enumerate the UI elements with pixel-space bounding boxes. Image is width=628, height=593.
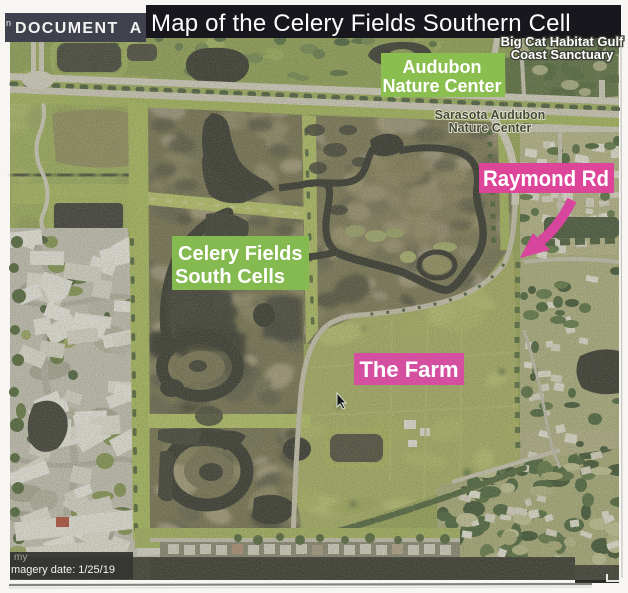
svg-text:South Cells: South Cells bbox=[175, 266, 285, 288]
svg-text:magery date: 1/25/19: magery date: 1/25/19 bbox=[11, 564, 115, 576]
svg-text:Nature Center: Nature Center bbox=[382, 76, 501, 96]
svg-text:my: my bbox=[14, 552, 27, 563]
svg-text:Audubon: Audubon bbox=[403, 57, 482, 77]
svg-text:Map of the Celery Fields South: Map of the Celery Fields Southern Cell bbox=[151, 10, 571, 37]
svg-text:Sarasota Audubon: Sarasota Audubon bbox=[435, 108, 546, 122]
svg-text:Nature Center: Nature Center bbox=[449, 121, 532, 135]
svg-text:Raymond Rd: Raymond Rd bbox=[483, 166, 609, 191]
svg-text:Celery Fields: Celery Fields bbox=[178, 243, 303, 265]
svg-text:Coast Sanctuary: Coast Sanctuary bbox=[511, 47, 614, 62]
svg-text:The Farm: The Farm bbox=[359, 357, 458, 382]
svg-text:n: n bbox=[6, 18, 11, 28]
svg-text:DOCUMENT A: DOCUMENT A bbox=[15, 20, 143, 37]
